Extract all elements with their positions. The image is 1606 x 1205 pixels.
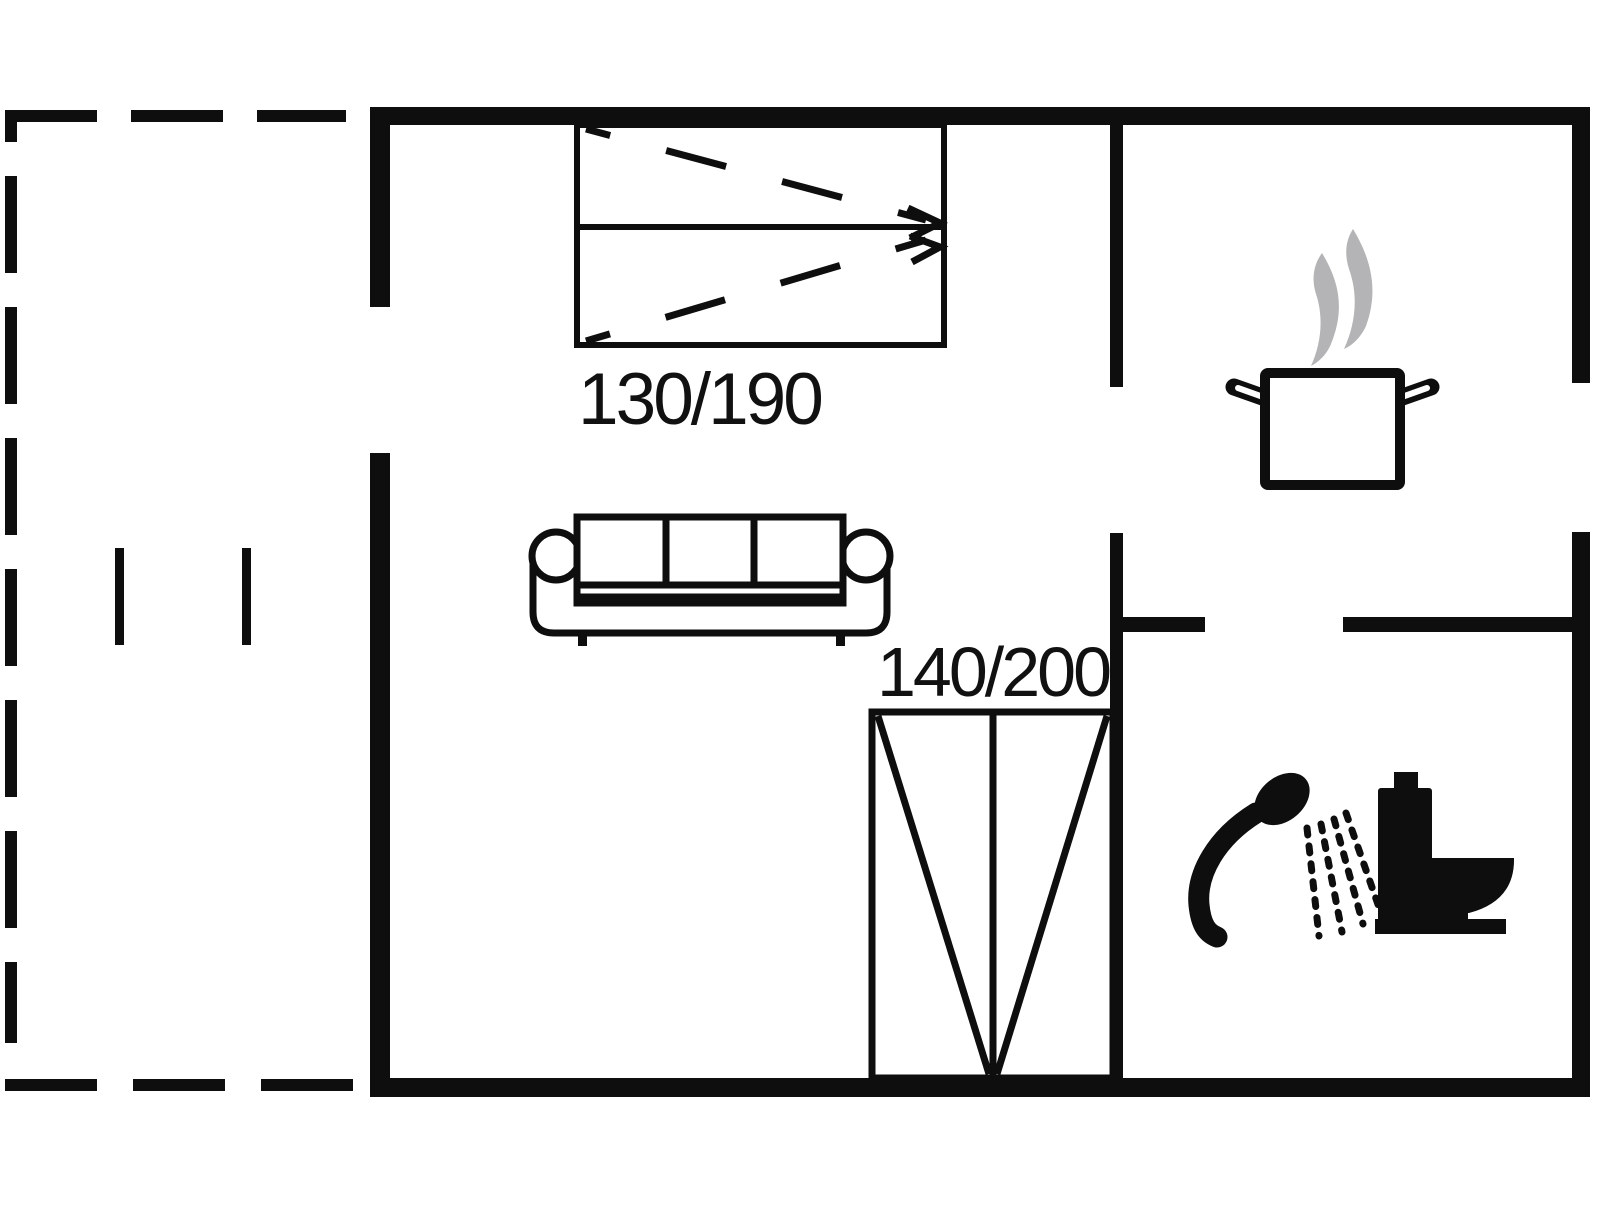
bed-top-size-label: 130/190 (578, 359, 821, 440)
shower-spray (1307, 813, 1381, 936)
double-bed-top (577, 125, 944, 345)
steam-wisp-right (1344, 229, 1372, 349)
cooking-pot-icon (1234, 373, 1431, 485)
sofa-armrest-left (532, 532, 580, 580)
spray-ray-4 (1346, 813, 1381, 913)
steam-wisp-left (1311, 253, 1339, 366)
spray-ray-3 (1334, 819, 1363, 924)
steam-icon (1311, 229, 1372, 366)
wall-right-lower (1572, 532, 1590, 1097)
toilet-icon (1375, 772, 1514, 934)
floor-plan: 130/190 140/200 (0, 0, 1606, 1205)
terrace-door-ticks (115, 548, 251, 645)
terrace-outline (5, 110, 357, 1085)
sofa-leg-right (836, 633, 845, 646)
pot-body (1265, 373, 1400, 485)
spray-ray-1 (1307, 828, 1319, 936)
wall-top (370, 107, 1590, 125)
wall-left-lower (370, 453, 390, 1097)
sofa-armrest-right (842, 532, 890, 580)
shower-handle (1199, 813, 1256, 937)
sofa-backrest (577, 517, 843, 603)
toilet-base (1375, 919, 1506, 934)
wall-kitchen-left-upper (1110, 125, 1123, 387)
double-bed-bottom (872, 712, 1113, 1078)
wall-kitchen-bath-left-stub (1110, 617, 1205, 632)
terrace-tick-left (115, 548, 124, 645)
wall-left-upper (370, 107, 390, 307)
sofa-leg-left (578, 633, 587, 646)
wall-kitchen-bath-right-stub (1343, 617, 1572, 632)
sofa (532, 517, 890, 646)
wall-right-upper (1572, 107, 1590, 383)
shower-head-icon (1199, 762, 1381, 937)
bed-bottom-size-label: 140/200 (877, 633, 1110, 711)
bed-top-outline (577, 125, 944, 345)
terrace-tick-right (242, 548, 251, 645)
floor-plan-page: 130/190 140/200 (0, 0, 1606, 1205)
toilet-flush-button (1394, 772, 1418, 790)
